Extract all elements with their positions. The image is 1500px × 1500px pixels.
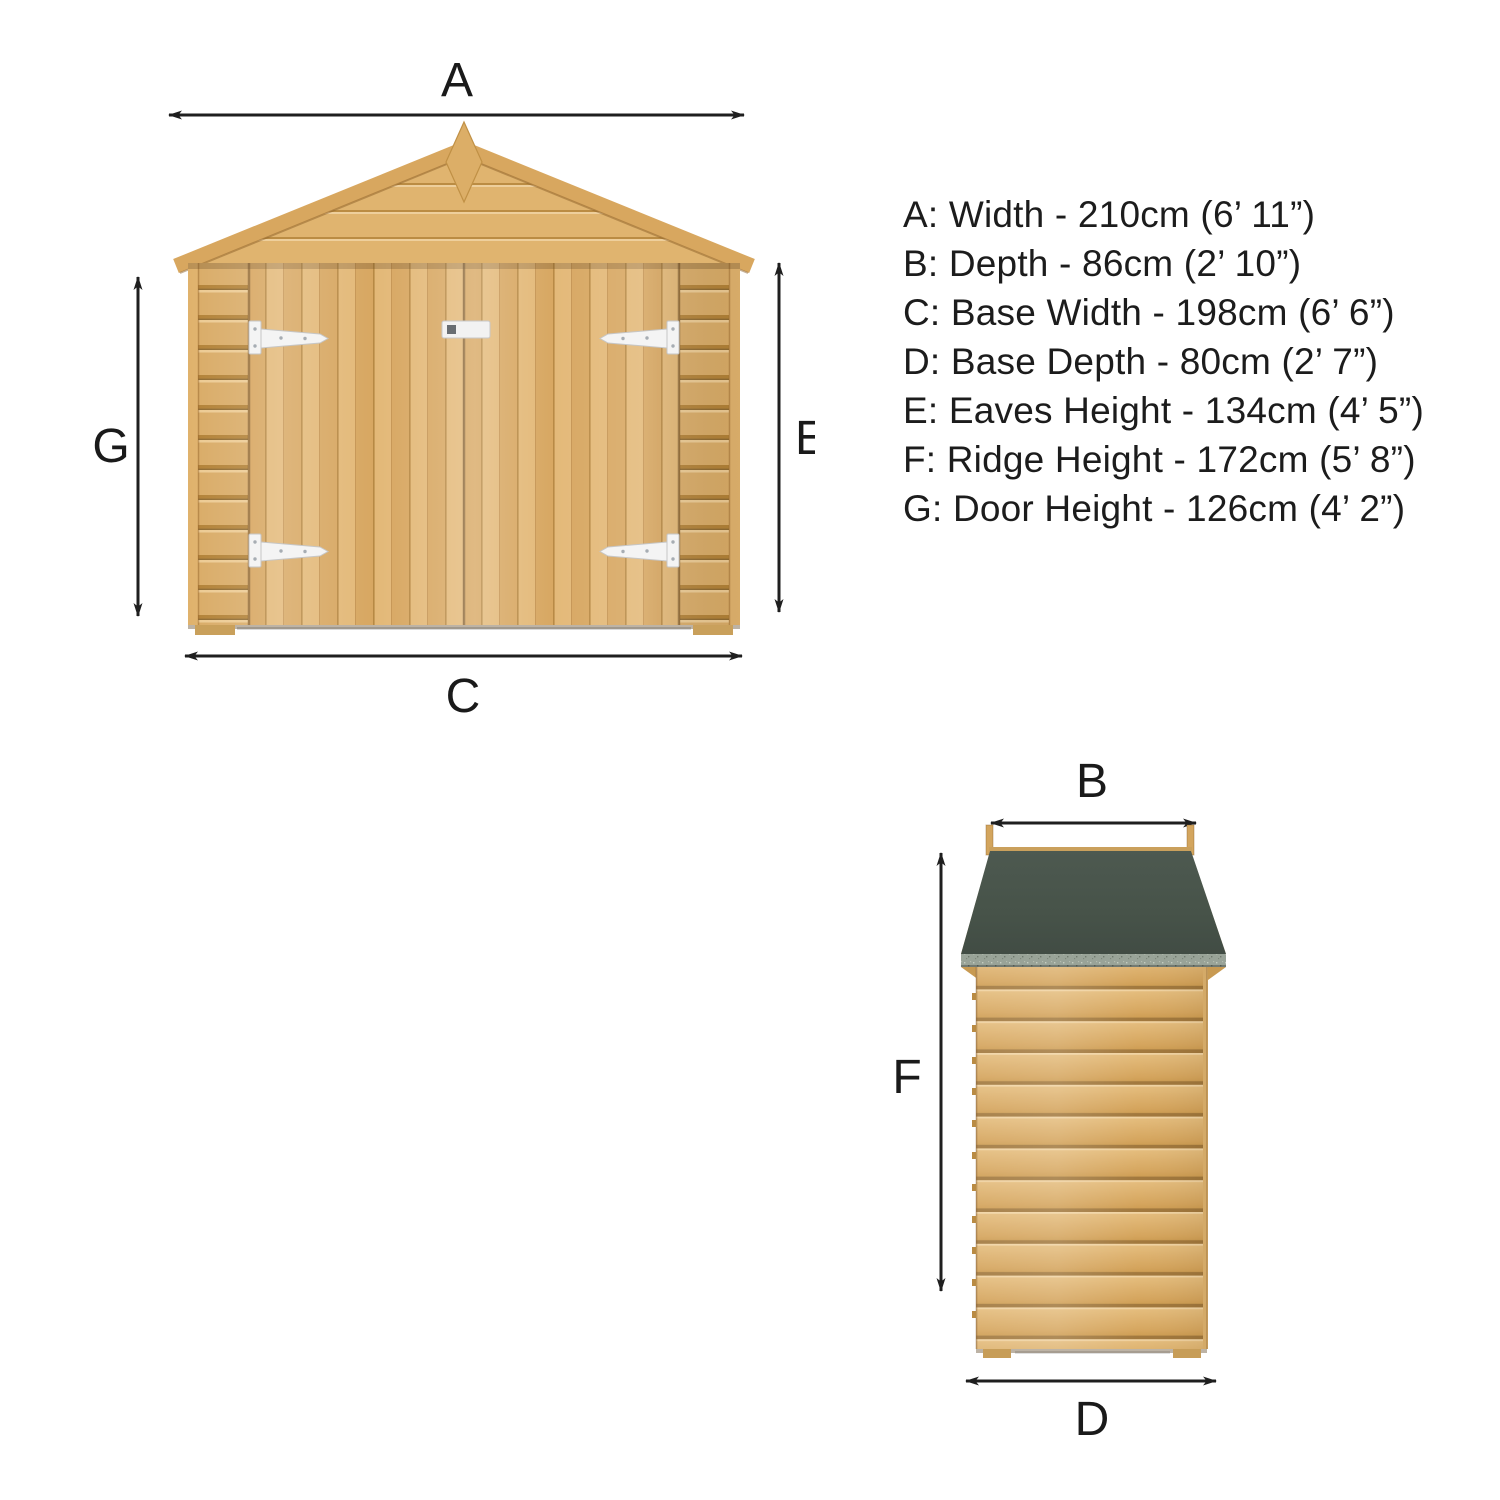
spec-line-width: A: Width - 210cm (6’ 11”) xyxy=(903,190,1424,239)
front-body xyxy=(188,263,740,635)
spec-line-ridge-height: F: Ridge Height - 172cm (5’ 8”) xyxy=(903,435,1424,484)
depth-label: B xyxy=(1076,755,1108,808)
dimension-spec-list: A: Width - 210cm (6’ 11”) B: Depth - 86c… xyxy=(903,190,1424,533)
side-body xyxy=(972,967,1208,1358)
shed-front-view: A xyxy=(85,50,815,750)
base-width-label: C xyxy=(446,670,481,723)
door-latch xyxy=(442,321,490,338)
width-label: A xyxy=(441,54,473,107)
spec-line-base-depth: D: Base Depth - 80cm (2’ 7”) xyxy=(903,337,1424,386)
front-roof xyxy=(176,122,752,273)
side-base xyxy=(976,1349,1207,1358)
side-roof xyxy=(961,825,1226,980)
door-height-label: G xyxy=(92,420,129,473)
eaves-height-label: E xyxy=(795,412,815,465)
front-base xyxy=(188,625,740,635)
spec-line-door-height: G: Door Height - 126cm (4’ 2”) xyxy=(903,484,1424,533)
ridge-height-label: F xyxy=(892,1051,921,1104)
dimension-diagram: A xyxy=(0,0,1500,1500)
spec-line-eaves-height: E: Eaves Height - 134cm (4’ 5”) xyxy=(903,386,1424,435)
shed-side-view: B xyxy=(855,735,1295,1445)
roof-felt xyxy=(961,851,1226,954)
spec-line-depth: B: Depth - 86cm (2’ 10”) xyxy=(903,239,1424,288)
base-depth-label: D xyxy=(1075,1393,1110,1445)
spec-line-base-width: C: Base Width - 198cm (6’ 6”) xyxy=(903,288,1424,337)
